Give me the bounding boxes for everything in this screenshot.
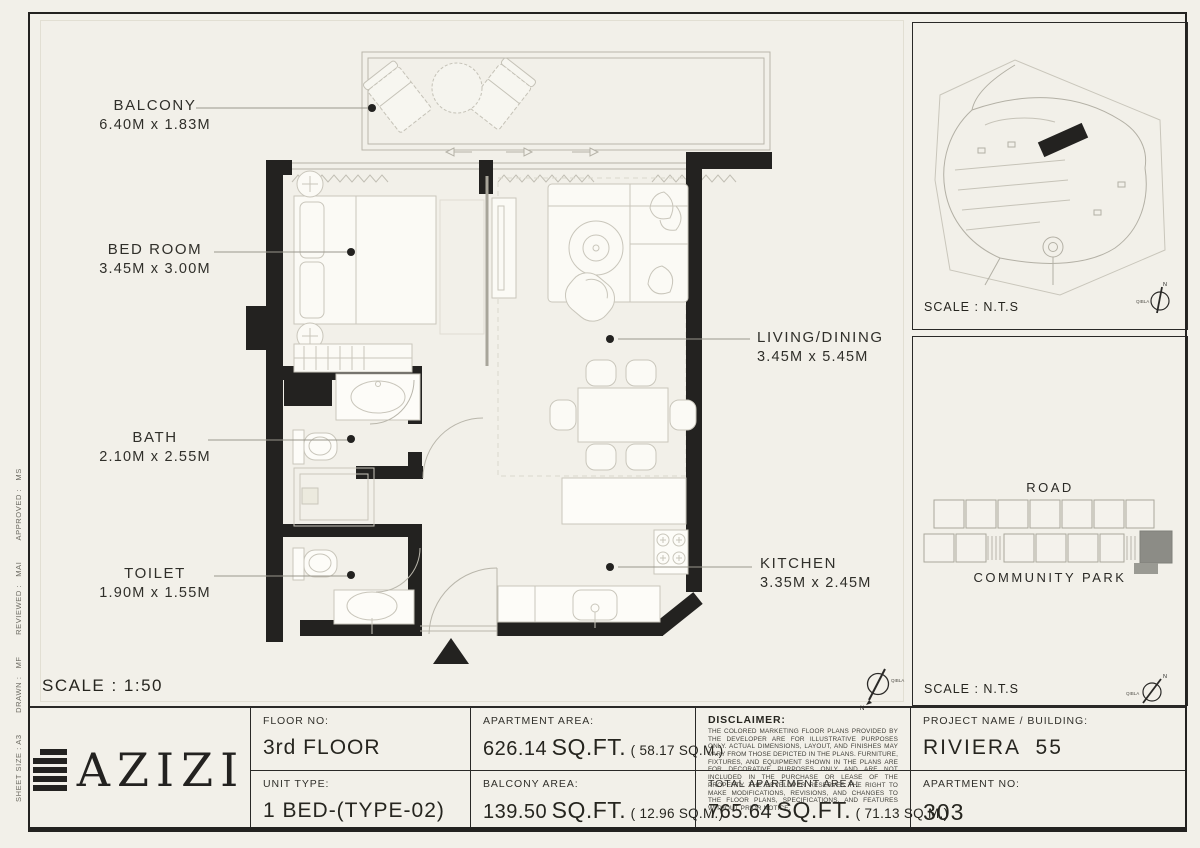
balcony-area-cell: BALCONY AREA: 139.50 SQ.FT. ( 12.96 SQ.M… <box>470 770 695 832</box>
project-name-cell: PROJECT NAME / BUILDING: RIVIERA 55 <box>910 708 1187 770</box>
floor-no-cell: FLOOR NO: 3rd FLOOR <box>250 708 470 770</box>
bath-label: BATH 2.10M x 2.55M <box>70 428 240 466</box>
bedroom-label: BED ROOM 3.45M x 3.00M <box>70 240 240 278</box>
unit-type-cell: UNIT TYPE: 1 BED-(TYPE-02) <box>250 770 470 832</box>
apartment-area-cell: APARTMENT AREA: 626.14 SQ.FT. ( 58.17 SQ… <box>470 708 695 770</box>
community-park-label: COMMUNITY PARK <box>912 570 1188 585</box>
balcony-label: BALCONY 6.40M x 1.83M <box>70 96 240 134</box>
key-plan-panel <box>912 336 1188 706</box>
title-block: AZIZI FLOOR NO: 3rd FLOOR UNIT TYPE: 1 B… <box>28 706 1187 832</box>
site-scale-label: SCALE : N.T.S <box>924 300 1019 314</box>
balcony-furniture <box>362 57 536 133</box>
entrance-door <box>420 568 497 636</box>
azizi-logo-bars-icon <box>33 749 67 791</box>
key-scale-label: SCALE : N.T.S <box>924 682 1019 696</box>
main-scale-label: SCALE : 1:50 <box>42 676 163 696</box>
floor-plan-sheet: N QIBLA N QIBLA <box>0 0 1200 848</box>
azizi-logo: AZIZI <box>28 708 250 832</box>
living-dining-label: LIVING/DINING 3.45M x 5.45M <box>757 328 927 366</box>
bedroom-furniture <box>294 171 484 372</box>
living-furniture <box>492 184 696 470</box>
sheet-meta-vertical: SHEET SIZE : A3 DRAWN : MF REVIEWED : MA… <box>14 382 23 802</box>
site-plan-panel <box>912 22 1188 330</box>
azizi-logo-word: AZIZI <box>77 747 246 793</box>
road-label: ROAD <box>912 480 1188 495</box>
kitchen-fixtures <box>498 478 688 628</box>
apartment-no-cell: APARTMENT NO: 303 <box>910 770 1187 832</box>
kitchen-label: KITCHEN 3.35M x 2.45M <box>760 554 930 592</box>
svg-text:QIBLA: QIBLA <box>891 678 904 683</box>
disclaimer-cell: DISCLAIMER: THE COLORED MARKETING FLOOR … <box>695 708 910 770</box>
toilet-label: TOILET 1.90M x 1.55M <box>70 564 240 602</box>
kitchen-corner-wall <box>658 598 698 630</box>
total-area-cell: TOTAL APARTMENT AREA: 765.64 SQ.FT. ( 71… <box>695 770 910 832</box>
